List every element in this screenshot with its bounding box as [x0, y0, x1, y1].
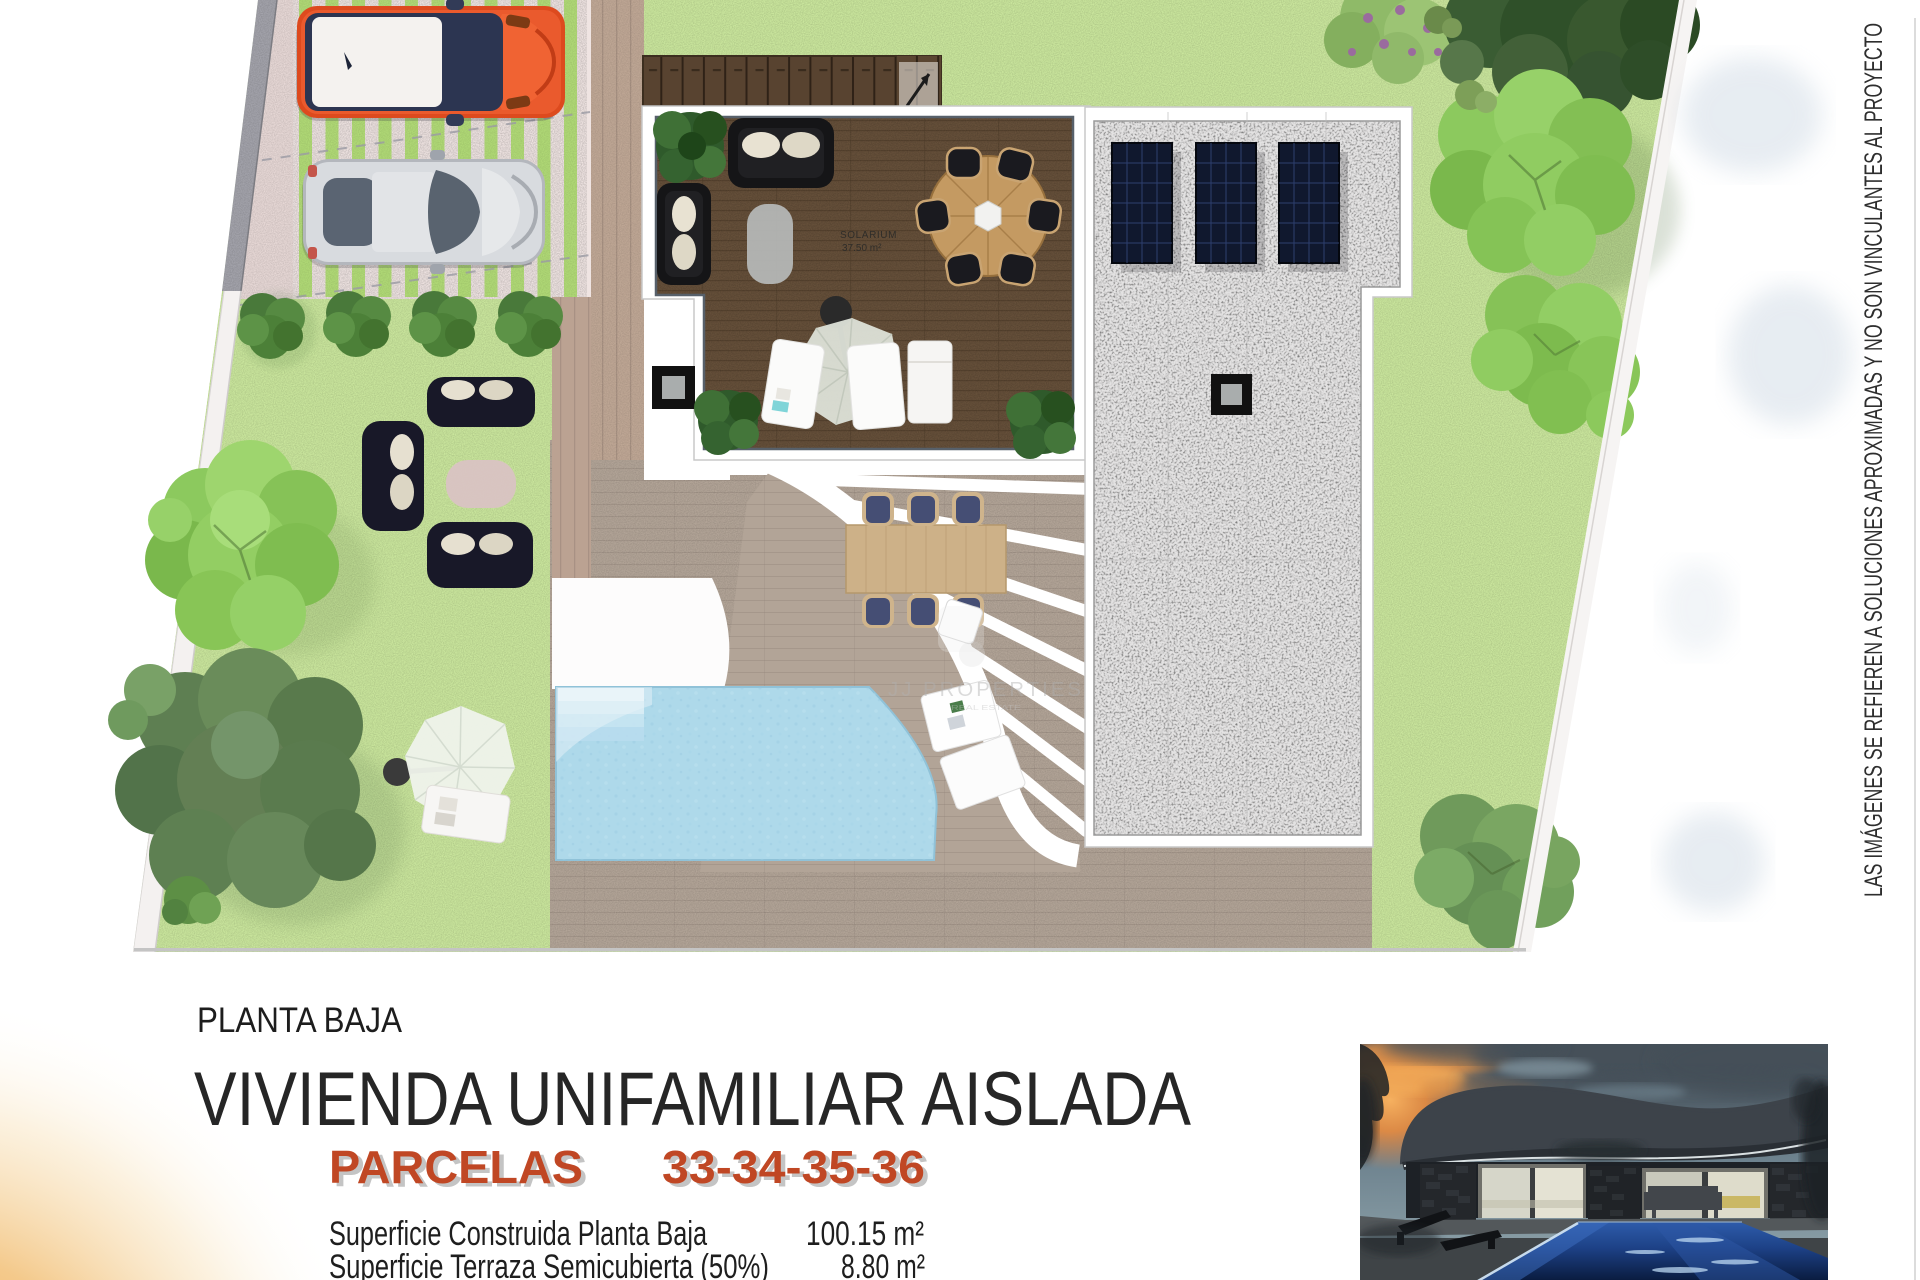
svg-text:REAL ESTATE: REAL ESTATE	[951, 705, 1021, 712]
svg-text:LAS IMÁGENES SE REFIEREN A SOL: LAS IMÁGENES SE REFIEREN A SOLUCIONES AP…	[1859, 23, 1888, 897]
svg-text:33-34-35-36: 33-34-35-36	[662, 1141, 925, 1193]
svg-text:VIVIENDA UNIFAMILIAR AISLADA: VIVIENDA UNIFAMILIAR AISLADA	[194, 1057, 1191, 1142]
svg-text:37.50 m²: 37.50 m²	[842, 243, 882, 254]
svg-text:PLANTA BAJA: PLANTA BAJA	[197, 1001, 403, 1040]
svg-text:Superficie Terraza Semicubiert: Superficie Terraza Semicubierta (50%)	[329, 1248, 769, 1280]
svg-text:PARCELAS: PARCELAS	[329, 1141, 583, 1193]
svg-text:8.80 m²: 8.80 m²	[841, 1248, 925, 1280]
svg-text:JJ PROPERTIES: JJ PROPERTIES	[888, 679, 1084, 701]
svg-text:SOLARIUM: SOLARIUM	[840, 230, 897, 241]
